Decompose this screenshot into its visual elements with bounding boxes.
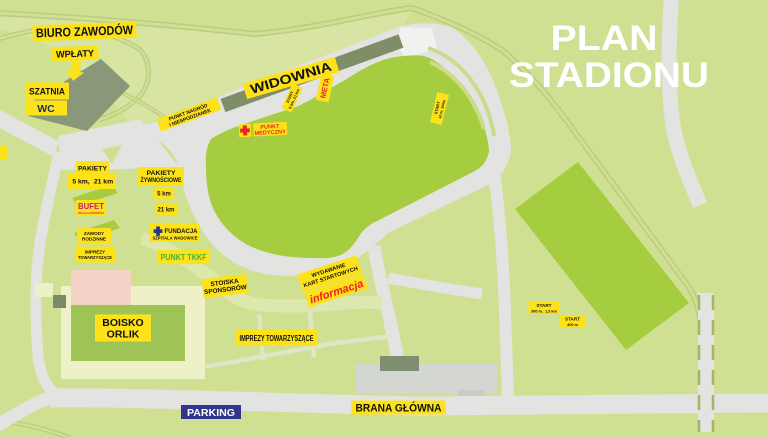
svg-text:BUFET: BUFET xyxy=(78,201,105,211)
svg-text:WPŁATY: WPŁATY xyxy=(56,48,95,60)
svg-text:ŻYWNOŚCIOWE: ŻYWNOŚCIOWE xyxy=(141,175,182,184)
svg-text:OBSŁUGA GASTRONOMICZNA: OBSŁUGA GASTRONOMICZNA xyxy=(78,211,104,215)
svg-text:PLAN: PLAN xyxy=(551,19,658,58)
svg-text:PUNKT TKKF: PUNKT TKKF xyxy=(161,252,207,262)
svg-text:TOWARZYSZĄCE: TOWARZYSZĄCE xyxy=(78,255,112,260)
svg-text:PAKIETY: PAKIETY xyxy=(78,166,107,173)
svg-text:WC: WC xyxy=(37,103,55,115)
svg-text:ORLIK: ORLIK xyxy=(107,329,140,341)
svg-text:21 km: 21 km xyxy=(157,208,174,214)
svg-text:START: START xyxy=(565,317,580,322)
svg-text:400 m: 400 m xyxy=(567,323,578,327)
svg-text:START: START xyxy=(537,303,552,308)
svg-text:PAKIETY: PAKIETY xyxy=(147,170,176,177)
svg-text:21 km: 21 km xyxy=(94,179,113,186)
svg-text:FUNDACJA: FUNDACJA xyxy=(165,229,199,235)
svg-text:300 m, 1,5 km: 300 m, 1,5 km xyxy=(531,309,557,313)
svg-text:SZATNIA: SZATNIA xyxy=(29,87,65,98)
svg-text:IMPREZY TOWARZYSZĄCE: IMPREZY TOWARZYSZĄCE xyxy=(240,334,314,343)
svg-text:STADIONU: STADIONU xyxy=(509,56,709,95)
svg-text:BOISKO: BOISKO xyxy=(102,317,143,329)
svg-text:IMPREZY: IMPREZY xyxy=(85,250,105,255)
svg-text:5 km: 5 km xyxy=(157,192,171,198)
svg-text:5 km,: 5 km, xyxy=(72,179,89,186)
svg-text:RODZINNE: RODZINNE xyxy=(82,237,106,242)
svg-text:BRANA GŁÓWNA: BRANA GŁÓWNA xyxy=(356,402,442,415)
svg-text:PARKING: PARKING xyxy=(187,407,235,419)
svg-text:SZPITALA WADOWICE: SZPITALA WADOWICE xyxy=(152,236,197,241)
svg-text:ZAWODY: ZAWODY xyxy=(84,231,104,236)
